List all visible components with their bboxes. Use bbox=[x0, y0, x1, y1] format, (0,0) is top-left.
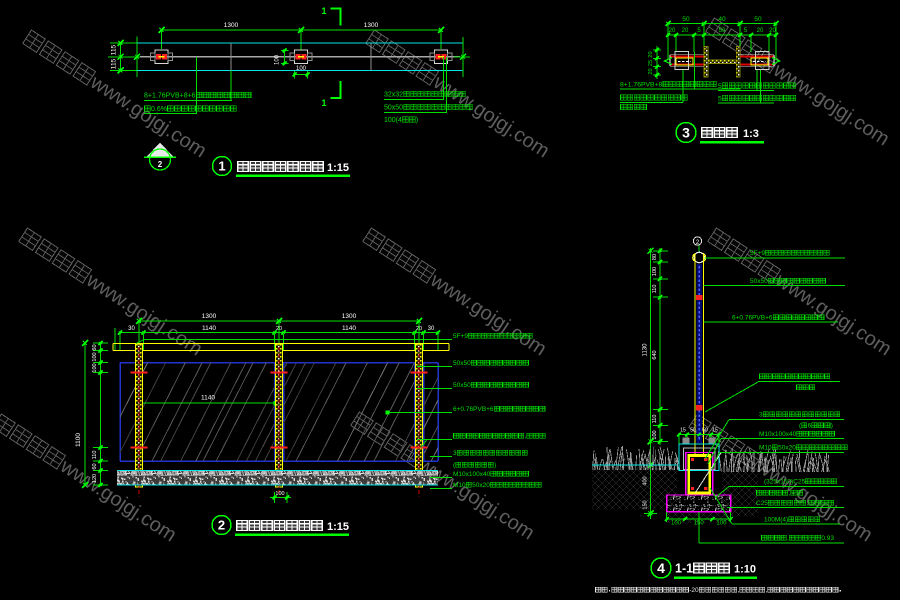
svg-text:640: 640 bbox=[652, 350, 658, 359]
svg-text:20: 20 bbox=[757, 28, 764, 34]
svg-text:2: 2 bbox=[158, 160, 163, 169]
svg-text:120: 120 bbox=[92, 474, 98, 483]
svg-text:50x50: 50x50 bbox=[453, 360, 471, 367]
svg-text:2: 2 bbox=[218, 518, 225, 533]
svg-text:8+1.76PVB+8: 8+1.76PVB+8 bbox=[620, 82, 663, 89]
svg-text:50x50: 50x50 bbox=[384, 105, 403, 112]
svg-text:5F+9: 5F+9 bbox=[453, 333, 468, 340]
svg-text:100: 100 bbox=[671, 521, 682, 527]
svg-text:60: 60 bbox=[92, 344, 98, 350]
svg-text:50x50: 50x50 bbox=[453, 382, 471, 389]
svg-text:1:3: 1:3 bbox=[743, 128, 759, 140]
svg-text:1-1: 1-1 bbox=[675, 562, 693, 576]
svg-text:1140: 1140 bbox=[342, 325, 356, 332]
svg-text:3: 3 bbox=[759, 412, 763, 419]
svg-text:40: 40 bbox=[718, 16, 726, 23]
svg-text:M10: M10 bbox=[453, 482, 466, 489]
svg-text:100: 100 bbox=[716, 521, 727, 527]
svg-text:50: 50 bbox=[682, 16, 690, 23]
svg-text:1: 1 bbox=[321, 6, 326, 16]
svg-text:6: 6 bbox=[808, 423, 812, 430]
svg-text:0.93: 0.93 bbox=[821, 535, 834, 542]
svg-text:-20: -20 bbox=[689, 587, 699, 594]
svg-text:50x50: 50x50 bbox=[750, 278, 768, 285]
svg-text:3: 3 bbox=[453, 450, 457, 457]
svg-text:30: 30 bbox=[428, 326, 435, 332]
svg-text:,: , bbox=[765, 587, 767, 594]
svg-text:100M(4): 100M(4) bbox=[764, 517, 788, 524]
svg-text:100(4: 100(4 bbox=[384, 117, 402, 124]
svg-text:15: 15 bbox=[712, 428, 718, 434]
svg-text:,: , bbox=[787, 535, 789, 542]
svg-text:50: 50 bbox=[702, 428, 708, 434]
svg-text:50x20: 50x20 bbox=[778, 445, 796, 452]
svg-text:110: 110 bbox=[92, 451, 98, 460]
svg-text:5F+9: 5F+9 bbox=[750, 250, 765, 257]
svg-text:1300: 1300 bbox=[364, 22, 379, 29]
svg-text:1300: 1300 bbox=[202, 313, 217, 320]
svg-text:(325x150)C25: (325x150)C25 bbox=[764, 479, 806, 486]
svg-text:80: 80 bbox=[652, 254, 658, 260]
svg-text:20: 20 bbox=[648, 68, 654, 74]
svg-text:20: 20 bbox=[648, 51, 654, 57]
svg-text:8+1.76PVB+8+6: 8+1.76PVB+8+6 bbox=[144, 93, 196, 100]
svg-text:32x32: 32x32 bbox=[384, 92, 403, 99]
svg-text:,: , bbox=[807, 500, 809, 507]
svg-text:60: 60 bbox=[92, 463, 98, 469]
svg-text:): ) bbox=[831, 423, 833, 430]
svg-text:1140: 1140 bbox=[201, 395, 215, 402]
svg-text:1:15: 1:15 bbox=[327, 162, 349, 174]
svg-text:5: 5 bbox=[718, 96, 722, 103]
svg-text:M10: M10 bbox=[759, 445, 772, 452]
svg-text:0.6%: 0.6% bbox=[151, 106, 167, 113]
svg-text:20: 20 bbox=[669, 28, 676, 34]
svg-text:1300: 1300 bbox=[224, 22, 239, 29]
svg-text:100: 100 bbox=[92, 363, 98, 372]
svg-text:6+0.76PVB+6: 6+0.76PVB+6 bbox=[732, 315, 773, 322]
svg-text:1140: 1140 bbox=[202, 325, 216, 332]
svg-text:30: 30 bbox=[128, 326, 135, 332]
svg-text:50: 50 bbox=[754, 16, 762, 23]
svg-text:1:10: 1:10 bbox=[734, 564, 756, 576]
svg-text:100: 100 bbox=[296, 66, 307, 72]
svg-text:20: 20 bbox=[769, 28, 776, 34]
svg-text:1100: 1100 bbox=[75, 433, 82, 447]
svg-text:C25: C25 bbox=[756, 500, 768, 507]
svg-text:50x20: 50x20 bbox=[472, 482, 490, 489]
svg-text:): ) bbox=[416, 117, 418, 124]
svg-text:M10x100x40: M10x100x40 bbox=[759, 431, 797, 438]
svg-text:1: 1 bbox=[218, 159, 225, 174]
svg-text:6+0.76PVB+6: 6+0.76PVB+6 bbox=[453, 406, 494, 413]
svg-text:5: 5 bbox=[718, 83, 722, 90]
svg-text:1130: 1130 bbox=[643, 343, 649, 357]
svg-text:,: , bbox=[738, 587, 740, 594]
svg-text:115: 115 bbox=[111, 44, 118, 55]
svg-text:1:15: 1:15 bbox=[327, 521, 349, 533]
svg-text:50: 50 bbox=[690, 428, 696, 434]
svg-text:115: 115 bbox=[111, 58, 118, 69]
svg-text:1: 1 bbox=[321, 98, 326, 108]
svg-text:25: 25 bbox=[648, 60, 654, 66]
svg-text:M10x100x40: M10x100x40 bbox=[453, 471, 491, 478]
svg-text:,: , bbox=[789, 490, 791, 497]
svg-text:50: 50 bbox=[719, 28, 726, 34]
svg-text:15: 15 bbox=[680, 428, 686, 434]
svg-text:,: , bbox=[525, 433, 527, 440]
svg-text:100: 100 bbox=[92, 352, 98, 361]
svg-text:110: 110 bbox=[652, 415, 658, 424]
svg-text:1300: 1300 bbox=[342, 313, 357, 320]
svg-text:100: 100 bbox=[275, 54, 281, 65]
svg-text:): ) bbox=[494, 462, 496, 469]
svg-text:4: 4 bbox=[657, 560, 665, 576]
svg-text:20: 20 bbox=[682, 28, 689, 34]
svg-text:110: 110 bbox=[652, 285, 658, 294]
svg-text:3: 3 bbox=[682, 125, 690, 141]
svg-text:100: 100 bbox=[652, 267, 658, 276]
